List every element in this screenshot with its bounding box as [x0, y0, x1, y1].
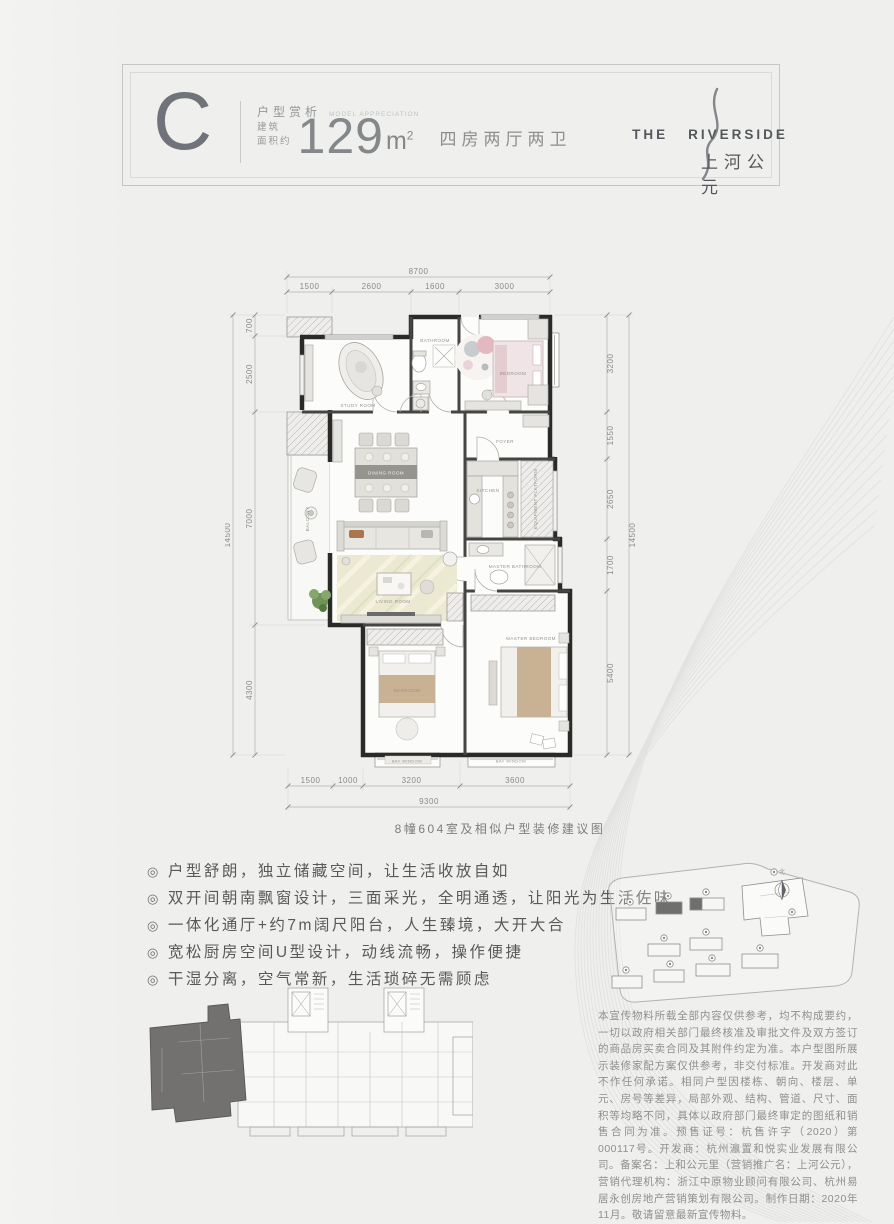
area-row: 建筑 面积约 129 m2 四房两厅两卫	[257, 116, 571, 157]
svg-text:7000: 7000	[245, 509, 254, 529]
key-plan-highlighted-unit	[150, 1004, 246, 1122]
header-divider	[240, 101, 241, 163]
room-label-foyer: FOYER	[496, 439, 514, 444]
area-prefix: 建筑 面积约	[257, 121, 292, 150]
svg-text:2600: 2600	[362, 282, 382, 291]
area-unit: m2	[386, 127, 414, 156]
svg-text:3000: 3000	[495, 282, 515, 291]
svg-text:1000: 1000	[338, 776, 358, 785]
area-value: 129	[298, 116, 384, 157]
room-label-bay-window-2: BAY WINDOW	[496, 759, 526, 764]
room-label-bedroom: BEDROOM	[394, 688, 421, 693]
svg-text:1500: 1500	[301, 776, 321, 785]
room-label-master-bath: MASTER BATHROOM	[489, 564, 542, 569]
svg-text:1700: 1700	[606, 555, 615, 575]
svg-text:5400: 5400	[606, 663, 615, 683]
svg-text:2650: 2650	[606, 489, 615, 509]
svg-text:9300: 9300	[419, 797, 439, 806]
room-label-kitchen: KITCHEN	[477, 488, 500, 493]
floorplan-caption: 8幢604室及相似户型装修建议图	[300, 820, 700, 837]
brand-logo: THE RIVERSIDE 上河公元	[629, 87, 791, 181]
room-label-master-bedroom: MASTER BEDROOM	[506, 636, 556, 641]
svg-text:14500: 14500	[225, 523, 232, 548]
room-label-study: STUDY ROOM	[340, 403, 375, 408]
room-label-equipment: EQUIPMENT PLATFORM	[533, 469, 538, 529]
svg-text:8700: 8700	[409, 267, 429, 276]
bullet-icon: ◎	[147, 891, 161, 907]
svg-text:3200: 3200	[606, 354, 615, 374]
site-boundary	[609, 863, 859, 1002]
room-label-bay-window-1: BAY WINDOW	[392, 759, 422, 764]
svg-text:北: 北	[779, 868, 785, 876]
building-key-plan	[138, 982, 473, 1172]
room-label-bathroom: BATHROOM	[420, 338, 449, 343]
svg-text:700: 700	[245, 318, 254, 333]
logo-chinese: 上河公元	[701, 148, 791, 198]
room-label-balcony: BALCONY	[305, 507, 310, 532]
brochure-page: { "header": { "letter": "C", "label_cn":…	[0, 0, 894, 1222]
floorplan: STUDY ROOM BATHROOM BEDROOM FOYER DINING…	[225, 255, 665, 850]
room-label-kids-bedroom: BEDROOM	[500, 371, 527, 376]
bullet-icon: ◎	[147, 945, 161, 961]
room-label-living: LIVING ROOM	[375, 599, 410, 604]
svg-text:2500: 2500	[245, 364, 254, 384]
unit-letter: C	[153, 81, 212, 163]
svg-text:4300: 4300	[245, 680, 254, 700]
bullet-icon: ◎	[147, 864, 161, 880]
room-label-dining: DINING ROOM	[368, 471, 404, 476]
key-plan-body	[238, 988, 473, 1136]
svg-text:3600: 3600	[505, 776, 525, 785]
svg-text:14500: 14500	[628, 523, 637, 548]
svg-text:1600: 1600	[425, 282, 445, 291]
logo-english: THE RIVERSIDE	[629, 127, 791, 142]
legal-disclaimer: 本宣传物料所载全部内容仅供参考，均不构成要约，一切以政府相关部门最终核准及审批文…	[598, 1008, 858, 1224]
bullet-icon: ◎	[147, 918, 161, 934]
site-plan: 北	[592, 856, 887, 1011]
svg-text:1550: 1550	[606, 426, 615, 446]
svg-text:3200: 3200	[402, 776, 422, 785]
foyer-furniture	[523, 415, 549, 427]
rooms-description: 四房两厅两卫	[439, 125, 571, 150]
svg-text:1500: 1500	[300, 282, 320, 291]
closet	[447, 593, 463, 621]
header-inner-frame: C 户型赏析MODEL APPRECIATION 建筑 面积约 129 m2 四…	[130, 72, 772, 178]
header-frame: C 户型赏析MODEL APPRECIATION 建筑 面积约 129 m2 四…	[122, 64, 780, 186]
